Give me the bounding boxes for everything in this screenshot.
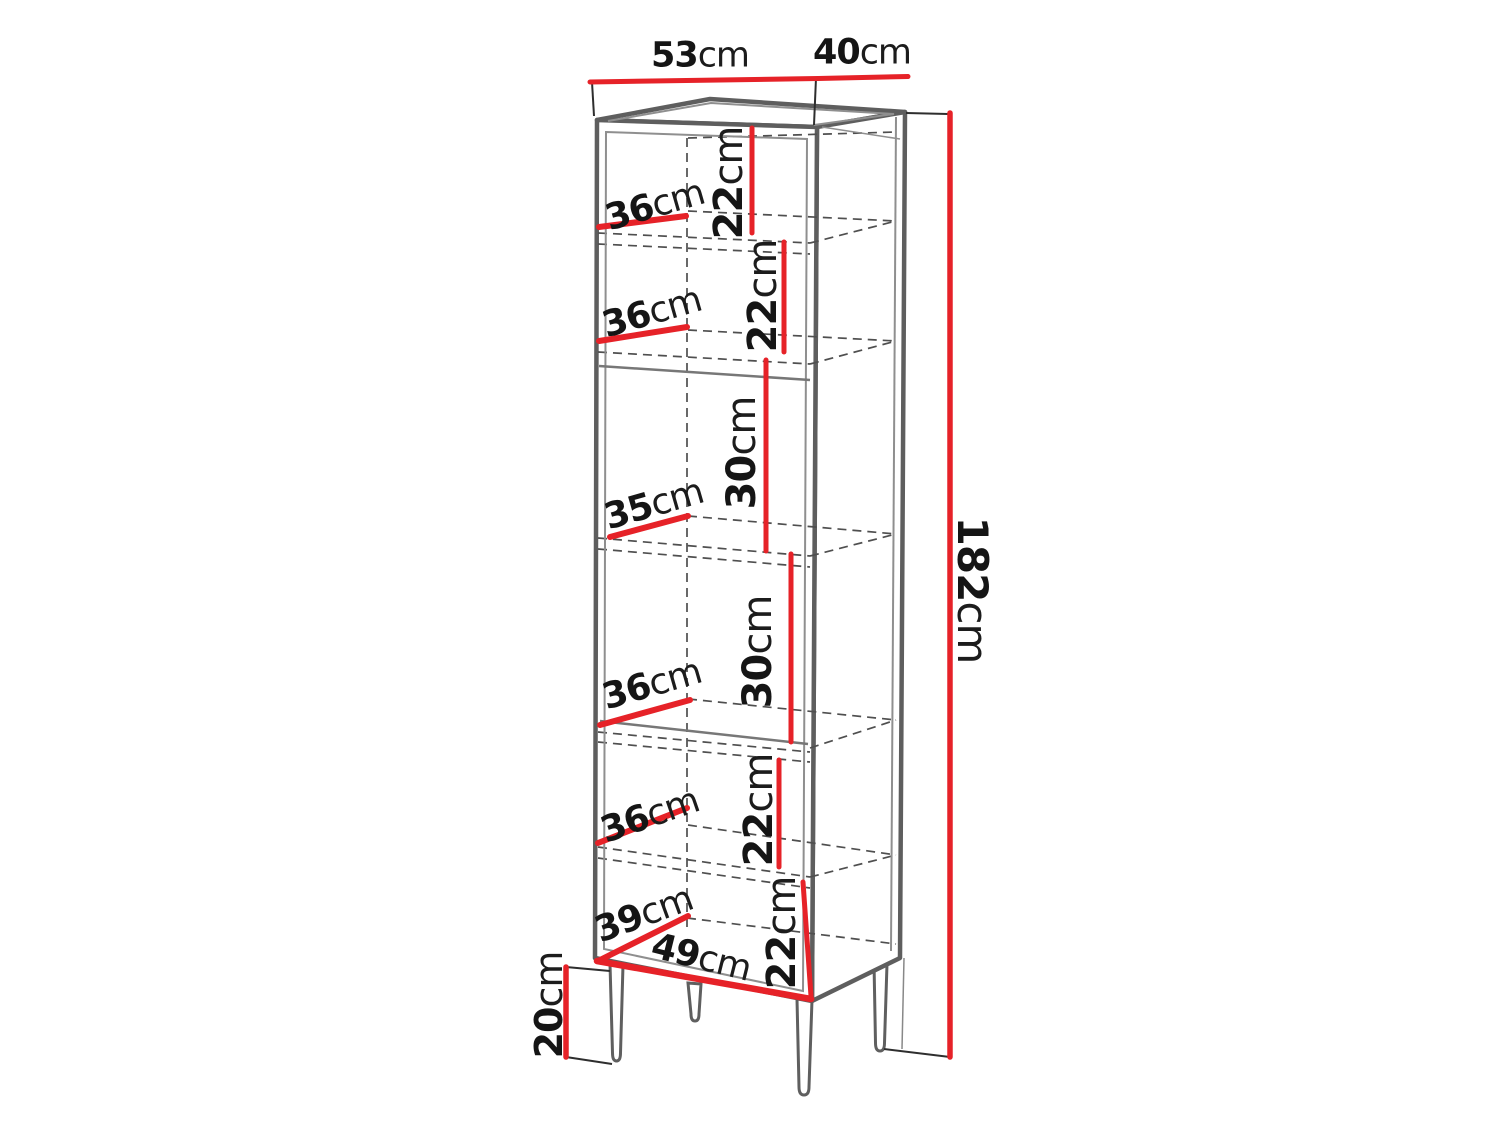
dim-value: 22: [740, 299, 786, 353]
dim-label-c1-height: 22cm: [709, 127, 749, 240]
dim-unit: cm: [706, 127, 752, 186]
dim-value: 20: [527, 1008, 571, 1059]
dim-unit: cm: [736, 754, 782, 813]
dim-label-leg-height: 20cm: [530, 952, 568, 1059]
dim-unit: cm: [759, 877, 805, 936]
dim-unit: cm: [698, 36, 749, 76]
dim-value: 22: [736, 813, 782, 867]
dim-line-top-width-depth: [590, 77, 908, 83]
dim-label-c5-height: 22cm: [739, 754, 779, 867]
dim-value: 22: [759, 936, 805, 990]
dim-label-total-height: 182cm: [951, 517, 993, 664]
dim-unit: cm: [527, 952, 571, 1008]
dim-value: 40: [813, 33, 860, 73]
leg-back-left: [688, 983, 701, 1021]
dim-unit: cm: [719, 397, 765, 456]
dim-unit: cm: [740, 240, 786, 299]
dim-value: 22: [706, 186, 752, 240]
dim-unit: cm: [860, 33, 911, 73]
dim-value: 182: [948, 517, 997, 602]
dim-label-top-width: 53cm: [651, 39, 749, 74]
dim-unit: cm: [948, 601, 997, 663]
dim-value: 30: [719, 456, 765, 510]
dimension-diagram: 53cm 40cm 182cm 20cm 36cm 22cm 36cm 22cm…: [0, 0, 1500, 1125]
dim-value: 53: [651, 36, 698, 76]
dim-unit: cm: [735, 596, 781, 655]
dim-label-c2-height: 22cm: [743, 240, 783, 353]
leg-front-right: [797, 999, 812, 1095]
leg-front-left: [610, 964, 623, 1061]
dim-label-top-depth: 40cm: [813, 36, 911, 71]
dim-value: 30: [735, 655, 781, 709]
dim-label-c4-height: 30cm: [738, 596, 778, 709]
dim-label-c3-height: 30cm: [722, 397, 762, 510]
leg-back-right: [874, 963, 887, 1051]
dim-label-c6-height: 22cm: [762, 877, 802, 990]
